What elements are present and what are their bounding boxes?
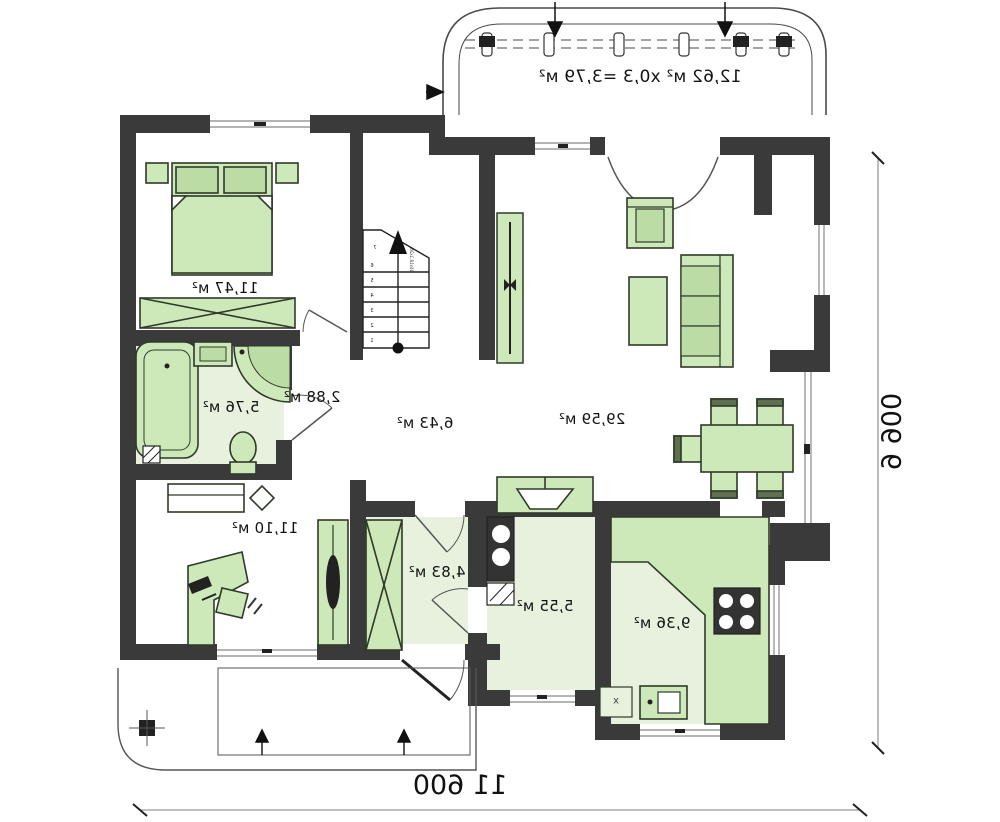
stair-dimension-note: 16x18,1x26: [409, 248, 414, 272]
stair-step-number: 2: [370, 323, 373, 329]
utility-fixtures: [487, 517, 514, 605]
office-furniture: [168, 484, 274, 645]
terrace-posts: [479, 33, 792, 56]
bedroom-area-label: 11,47 м²: [192, 279, 259, 297]
floor-plan-mirrored: 12,62 м² x0,3 =3,79 м² 11,47 м² 2,88 м² …: [0, 0, 1000, 822]
stair-step-number: 6: [370, 263, 373, 269]
living-area-label: 29,59 м²: [559, 410, 626, 428]
porch: [118, 668, 476, 770]
stair-step-number: 3: [370, 308, 373, 314]
floor-plan-canvas: 12,62 м² x0,3 =3,79 м² 11,47 м² 2,88 м² …: [0, 0, 1000, 822]
tv-cabinet: [497, 213, 523, 363]
terrace-area-label: 12,62 м² x0,3 =3,79 м²: [538, 67, 741, 87]
stair-step-number: 1: [370, 338, 373, 344]
width-dimension-label: 11 600: [390, 770, 530, 801]
floor-plan-drawing: [0, 0, 1000, 822]
utility-area-label: 5,55 м²: [517, 597, 574, 615]
kitchen-area-label: 9,36 м²: [634, 614, 691, 632]
hall-area-label: 6,43 м²: [397, 414, 454, 432]
kitchen-drain-mark: x: [613, 696, 619, 707]
terrace-outline: [443, 8, 826, 115]
living-furniture: [497, 198, 733, 513]
vestibule-area-label: 4,83 м²: [409, 563, 466, 581]
stair-step-number: 5: [370, 278, 373, 284]
bedroom-furniture: [140, 163, 298, 328]
stair-step-number: 7: [373, 245, 376, 251]
dining-set: [674, 399, 793, 498]
corridor-area-label: 2,88 м²: [284, 388, 341, 406]
office-area-label: 11,10 м²: [232, 519, 299, 537]
bathroom-area-label: 5,76 м²: [203, 398, 260, 416]
height-dimension-label: 9 900: [875, 372, 906, 492]
stair-step-number: 4: [370, 293, 373, 299]
